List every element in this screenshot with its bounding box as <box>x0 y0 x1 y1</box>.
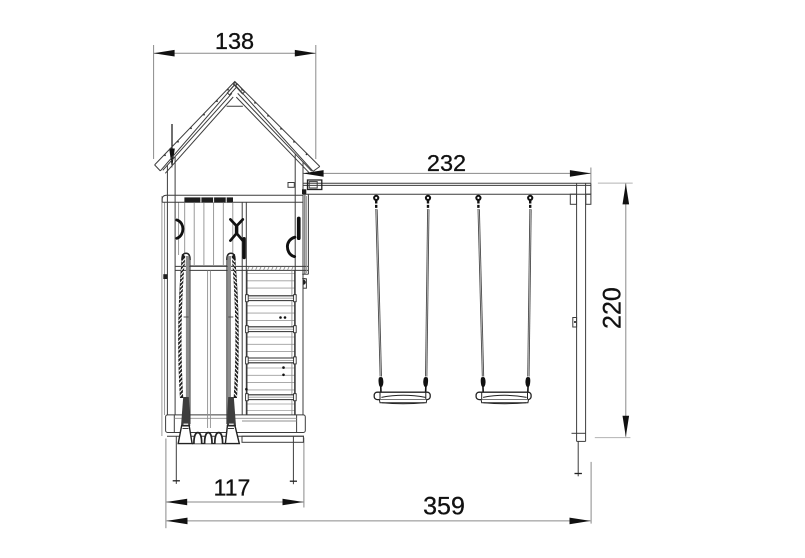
svg-text:232: 232 <box>427 150 466 176</box>
svg-text:117: 117 <box>214 475 251 501</box>
svg-text:138: 138 <box>215 28 254 54</box>
svg-text:220: 220 <box>599 287 627 329</box>
svg-text:359: 359 <box>423 493 465 521</box>
